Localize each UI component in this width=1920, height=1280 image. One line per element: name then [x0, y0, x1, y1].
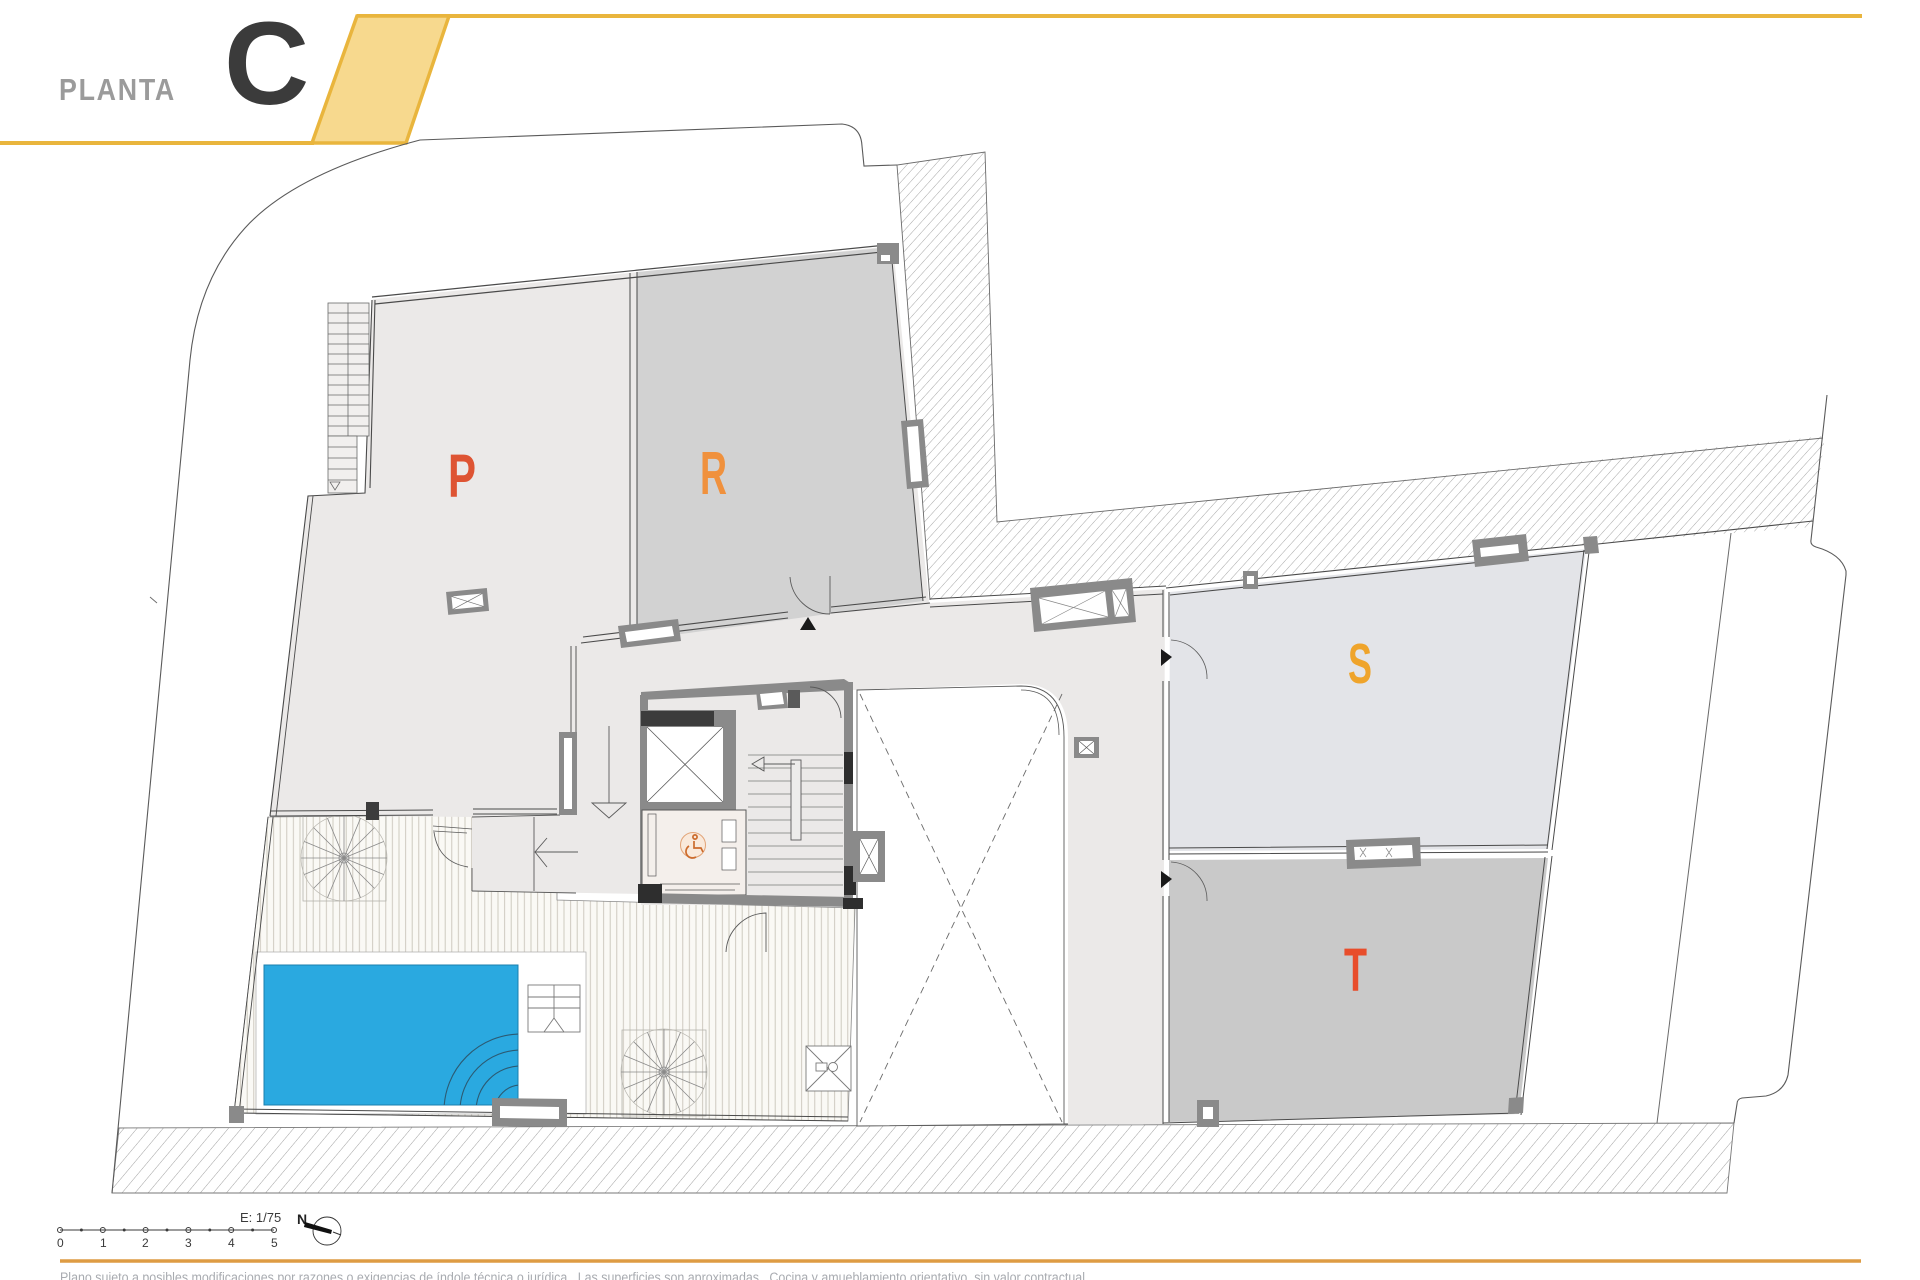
- svg-text:P: P: [448, 442, 476, 510]
- svg-text:S: S: [1348, 632, 1372, 696]
- svg-text:R: R: [700, 439, 727, 507]
- svg-text:PLANTA: PLANTA: [59, 72, 176, 107]
- svg-text:5: 5: [271, 1236, 278, 1250]
- svg-text:E: 1/75: E: 1/75: [240, 1210, 281, 1225]
- svg-text:T: T: [1344, 936, 1367, 1004]
- svg-text:Plano sujeto a posibles modifi: Plano sujeto a posibles modificaciones p…: [60, 1270, 1085, 1280]
- svg-text:2: 2: [142, 1236, 149, 1250]
- svg-text:1: 1: [100, 1236, 107, 1250]
- svg-text:4: 4: [228, 1236, 235, 1250]
- svg-text:3: 3: [185, 1236, 192, 1250]
- svg-text:0: 0: [57, 1236, 64, 1250]
- svg-text:C: C: [224, 0, 309, 130]
